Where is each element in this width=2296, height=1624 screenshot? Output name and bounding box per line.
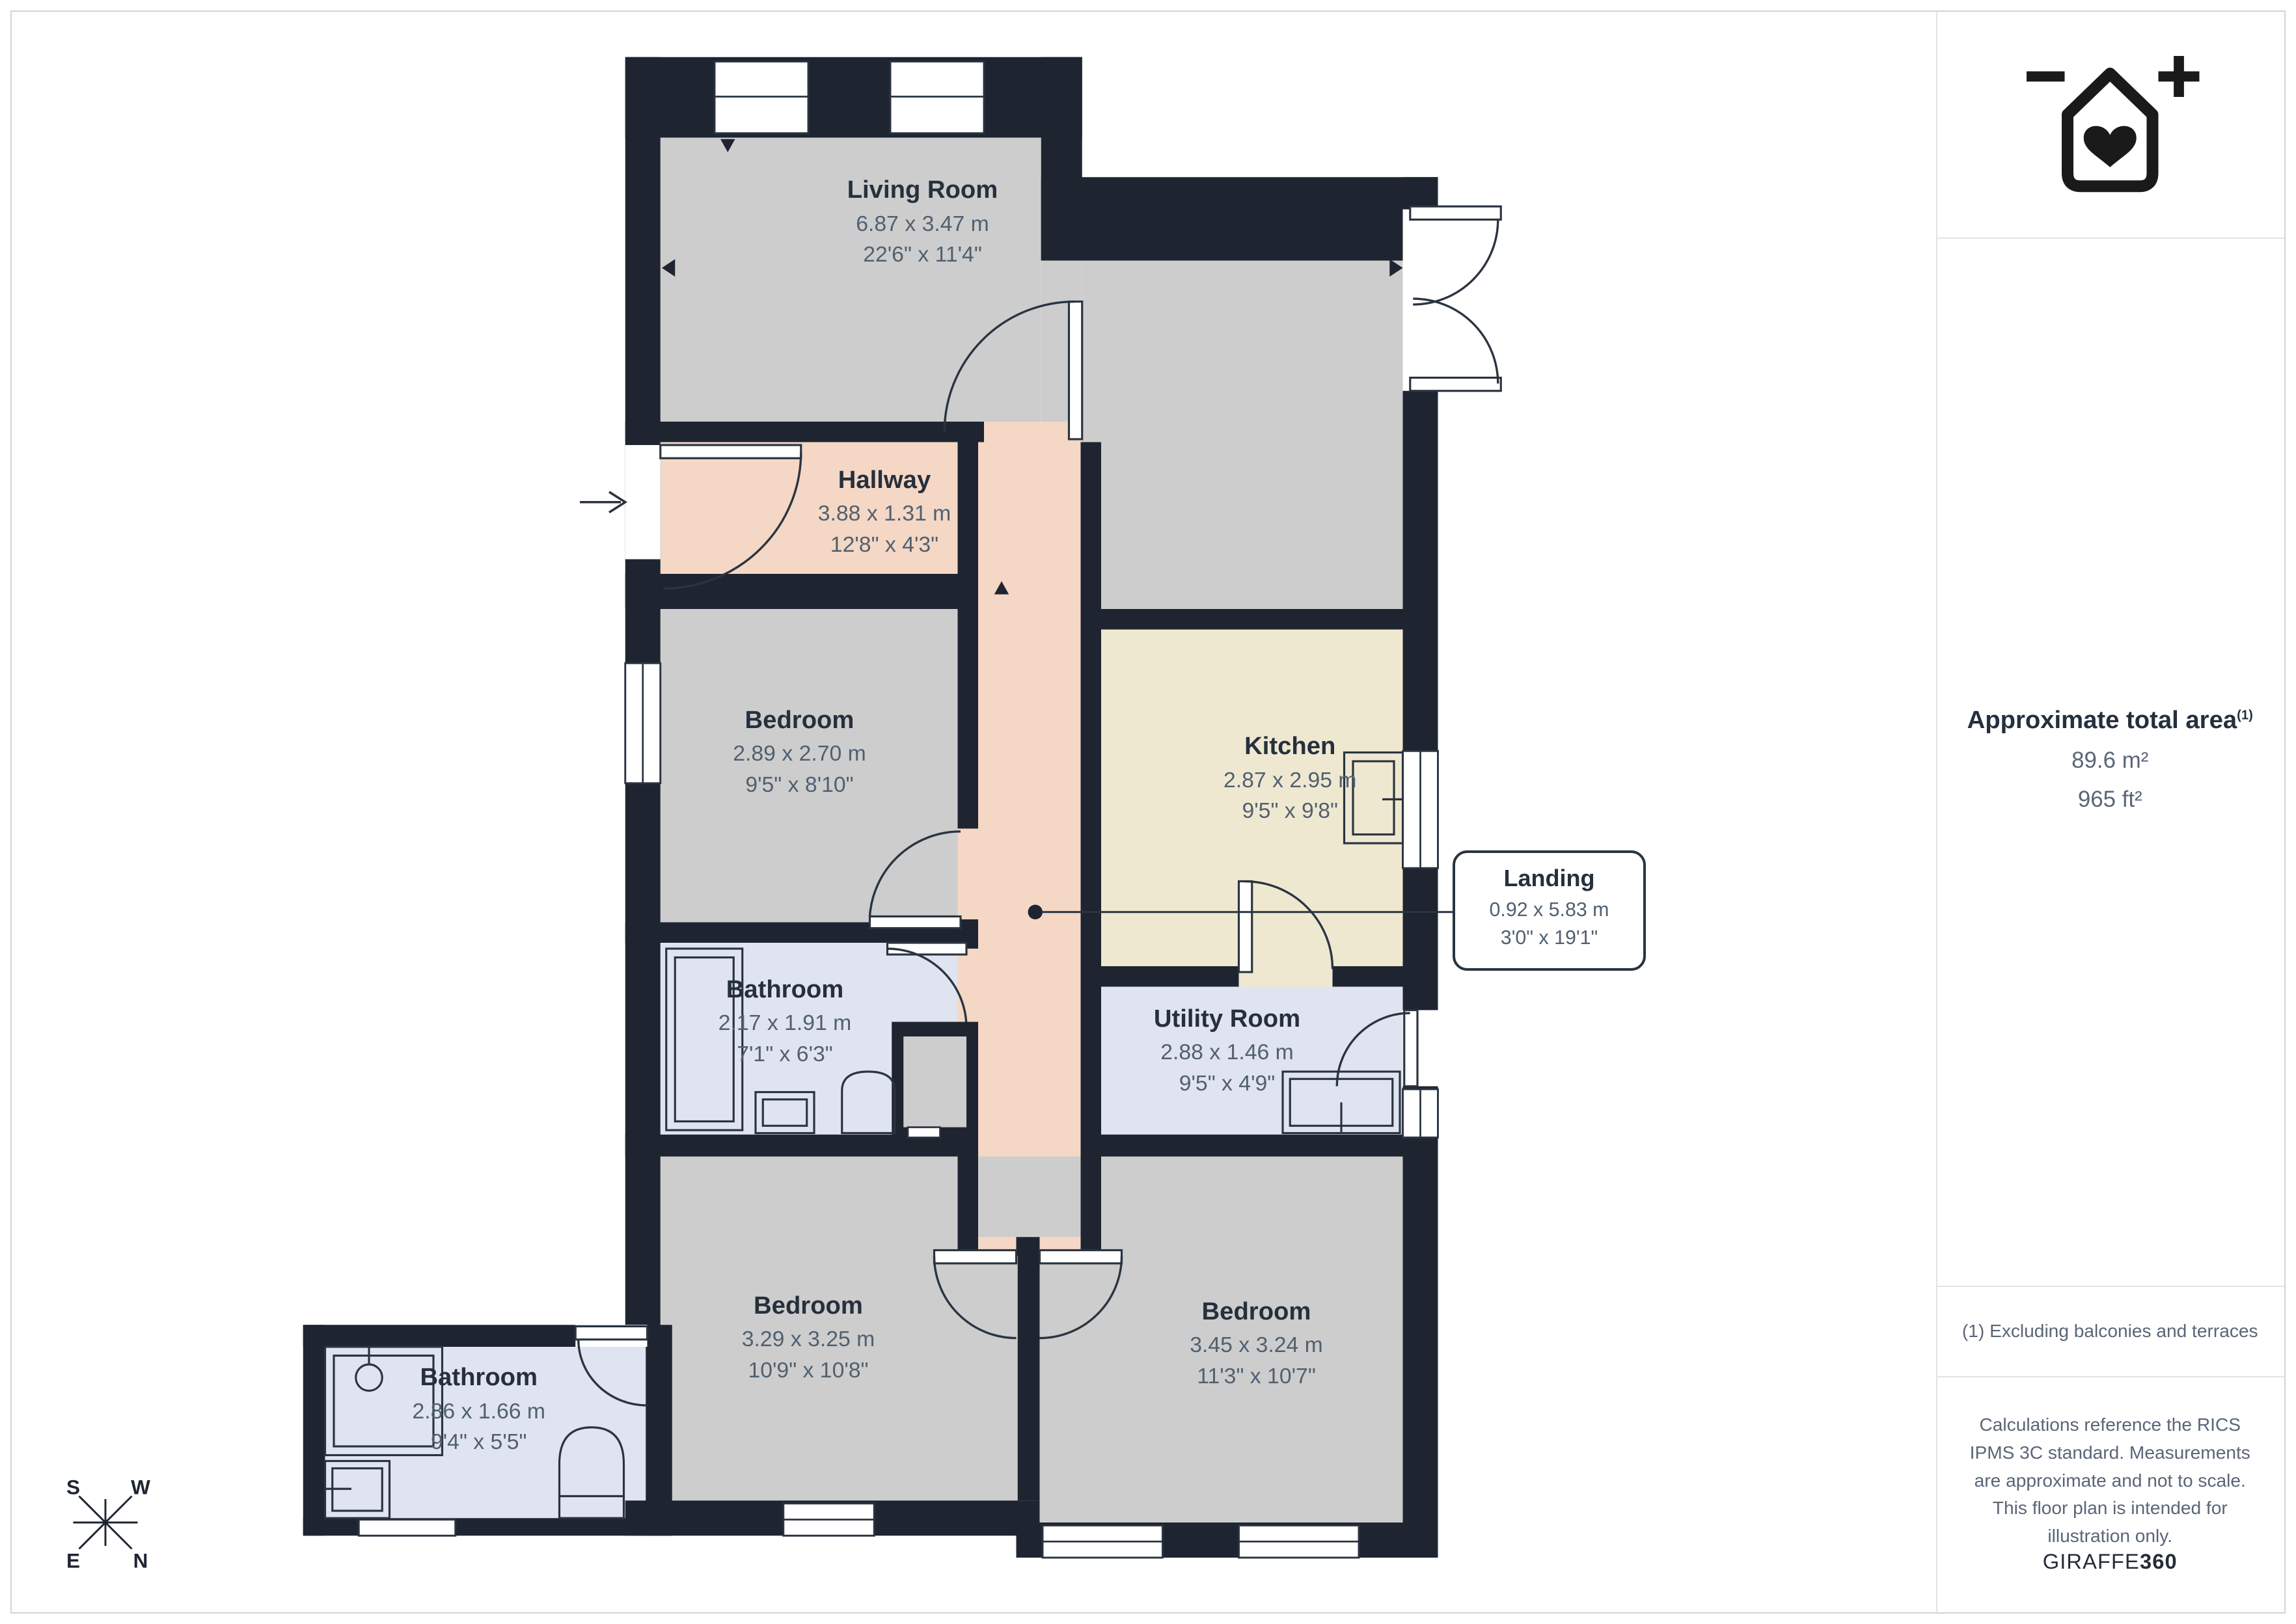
french-door-leaf-bottom [1410, 378, 1501, 391]
landing-callout: Landing 0.92 x 5.83 m 3'0" x 19'1" [1453, 850, 1646, 971]
compass-letter-n: N [133, 1549, 148, 1573]
compass-letter-s: S [66, 1476, 80, 1500]
giraffe360-wordmark: GIRAFFE360 [1936, 1549, 2285, 1574]
bathroom-2-door-leaf [575, 1327, 647, 1340]
room-label-bedroom-1: Bedroom 2.89 x 2.70 m 9'5" x 8'10" [733, 706, 866, 800]
room-label-bathroom-2: Bathroom 2.86 x 1.66 m 9'4" x 5'5" [413, 1363, 546, 1457]
room-label-utility-room: Utility Room 2.88 x 1.46 m 9'5" x 4'9" [1154, 1005, 1300, 1099]
bedroom-1-door-leaf [870, 917, 961, 928]
compass-icon [74, 1496, 138, 1549]
room-label-hallway: Hallway 3.88 x 1.31 m 12'8" x 4'3" [818, 466, 951, 560]
room-name: Living Room [847, 176, 998, 204]
utility-door-leaf [1404, 1010, 1417, 1087]
disclaimer-text: Calculations reference the RICS IPMS 3C … [1956, 1411, 2264, 1550]
kitchen-door-leaf [1239, 882, 1252, 973]
total-area-m2: 89.6 m² [1936, 748, 2285, 774]
closet [892, 1022, 978, 1138]
compass-letter-e: E [66, 1549, 80, 1573]
bedroom-3-door-leaf [1040, 1251, 1122, 1264]
room-dims-m: 6.87 x 3.47 m [847, 209, 998, 239]
footnote-marker: (1) [2237, 708, 2253, 722]
sidebar-divider-2 [1936, 1286, 2285, 1287]
room-label-bedroom-2: Bedroom 3.29 x 3.25 m 10'9" x 10'8" [742, 1292, 875, 1386]
giraffe360-home-logo-icon [2015, 44, 2206, 198]
floorplan-page: Living Room 6.87 x 3.47 m 22'6" x 11'4" … [0, 0, 2296, 1623]
window-bathroom-2 [359, 1520, 456, 1536]
sidebar-divider-1 [1936, 237, 2285, 239]
total-area-ft2: 965 ft² [1936, 787, 2285, 813]
front-door-leaf [661, 445, 801, 458]
french-door-leaf-top [1410, 206, 1501, 219]
compass-letter-w: W [131, 1476, 150, 1500]
plus-icon [2159, 56, 2200, 97]
sidebar: Approximate total area(1) 89.6 m² 965 ft… [1936, 12, 2285, 1612]
heart-icon [2084, 126, 2137, 167]
total-area-heading: Approximate total area(1) [1936, 706, 2285, 735]
entrance-arrow-icon [580, 492, 625, 513]
room-label-bathroom-1: Bathroom 2.17 x 1.91 m 7'1" x 6'3" [718, 975, 852, 1070]
sidebar-divider-3 [1936, 1376, 2285, 1377]
room-label-kitchen: Kitchen 2.87 x 2.95 m 9'5" x 9'8" [1223, 732, 1357, 826]
room-fill-landing [978, 442, 1081, 1256]
room-label-bedroom-3: Bedroom 3.45 x 3.24 m 11'3" x 10'7" [1190, 1297, 1323, 1392]
room-dims-ft: 22'6" x 11'4" [847, 239, 998, 270]
room-label-living-room: Living Room 6.87 x 3.47 m 22'6" x 11'4" [847, 176, 998, 270]
total-area-block: Approximate total area(1) 89.6 m² 965 ft… [1936, 706, 2285, 813]
house-icon [2068, 74, 2153, 186]
area-footnote: (1) Excluding balconies and terraces [1936, 1321, 2285, 1342]
bedroom-2-door-leaf [935, 1251, 1017, 1264]
living-room-door-leaf [1069, 302, 1082, 440]
